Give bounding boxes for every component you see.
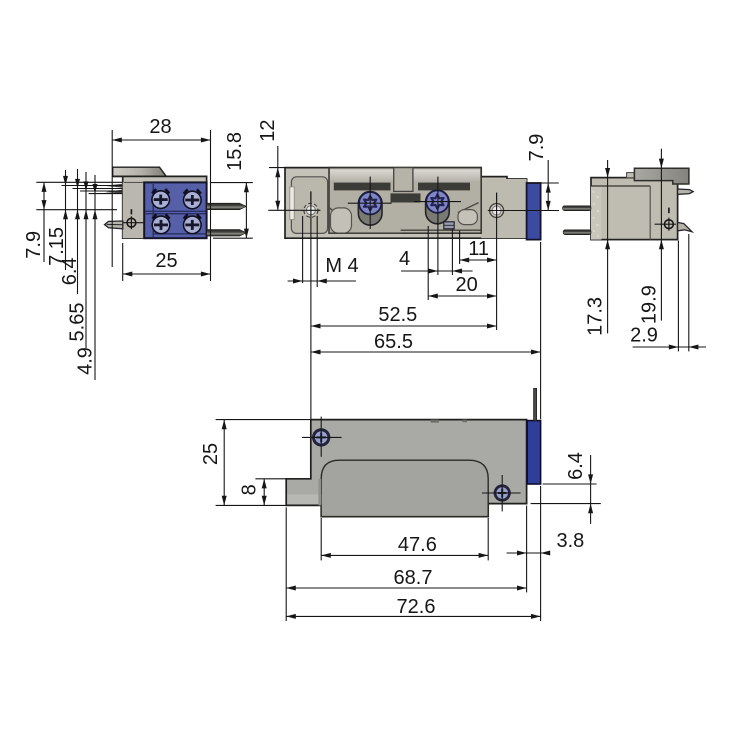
svg-text:28: 28: [149, 116, 171, 138]
svg-text:12: 12: [257, 119, 279, 141]
svg-text:68.7: 68.7: [394, 567, 433, 589]
svg-text:52.5: 52.5: [378, 304, 417, 326]
svg-text:20: 20: [455, 274, 477, 296]
svg-text:7.9: 7.9: [526, 134, 548, 162]
svg-text:19.9: 19.9: [639, 285, 661, 324]
svg-text:2.9: 2.9: [630, 325, 658, 347]
svg-text:65.5: 65.5: [374, 331, 413, 353]
svg-text:4.9: 4.9: [74, 347, 96, 375]
svg-text:M 4: M 4: [325, 255, 358, 277]
svg-text:5.65: 5.65: [66, 303, 88, 342]
svg-text:6.4: 6.4: [59, 257, 81, 285]
svg-text:25: 25: [200, 443, 222, 465]
svg-text:47.6: 47.6: [398, 534, 437, 556]
svg-text:6.4: 6.4: [565, 452, 587, 480]
svg-text:4: 4: [399, 248, 410, 270]
svg-text:17.3: 17.3: [584, 297, 606, 336]
svg-text:7.9: 7.9: [23, 231, 45, 259]
svg-text:15.8: 15.8: [224, 132, 246, 171]
svg-text:72.6: 72.6: [397, 596, 436, 618]
svg-text:25: 25: [155, 250, 177, 272]
svg-text:3.8: 3.8: [556, 530, 584, 552]
svg-text:11: 11: [468, 238, 489, 260]
svg-text:8: 8: [238, 484, 260, 495]
